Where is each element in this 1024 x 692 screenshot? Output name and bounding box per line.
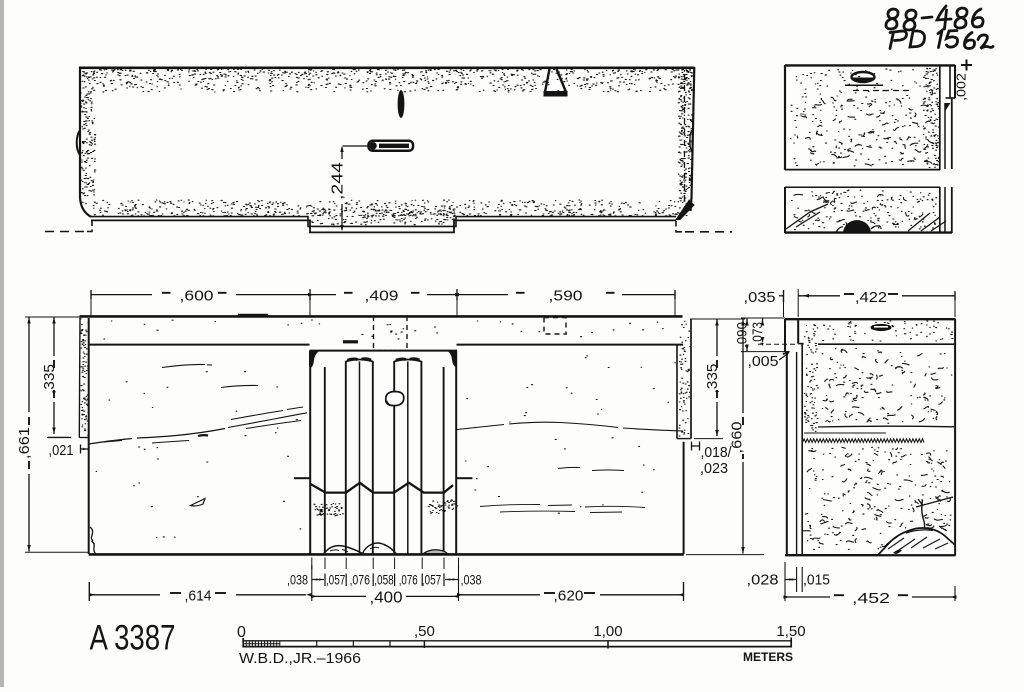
svg-text:,335: ,335 xyxy=(41,364,58,394)
svg-text:,50: ,50 xyxy=(414,623,435,640)
svg-text:,590: ,590 xyxy=(549,287,583,304)
svg-text:,452: ,452 xyxy=(852,590,890,607)
svg-text:,038: ,038 xyxy=(287,572,308,587)
svg-text:1,50: 1,50 xyxy=(776,623,805,640)
svg-text:,600: ,600 xyxy=(180,287,214,304)
svg-text:,057: ,057 xyxy=(326,572,346,587)
svg-text:,057: ,057 xyxy=(422,572,442,587)
svg-text:,028: ,028 xyxy=(747,573,779,589)
svg-text:,661: ,661 xyxy=(16,427,33,459)
svg-text:,400: ,400 xyxy=(370,589,403,606)
svg-text:,015: ,015 xyxy=(803,573,830,589)
svg-text:,076: ,076 xyxy=(399,572,418,587)
svg-text:,073: ,073 xyxy=(749,322,765,345)
svg-text:,005: ,005 xyxy=(748,354,779,370)
svg-text:,090: ,090 xyxy=(734,322,750,348)
svg-text:,021: ,021 xyxy=(49,443,74,459)
svg-text:,076: ,076 xyxy=(349,572,370,587)
svg-text:,058: ,058 xyxy=(374,572,394,587)
svg-text:,335: ,335 xyxy=(704,364,721,394)
svg-text:,614: ,614 xyxy=(185,588,212,605)
svg-text:,002: ,002 xyxy=(954,73,969,101)
svg-text:,660: ,660 xyxy=(729,422,746,454)
svg-text:A 3387: A 3387 xyxy=(90,619,176,658)
svg-text:,035: ,035 xyxy=(744,289,776,306)
svg-text:,620: ,620 xyxy=(554,588,584,605)
svg-text:,422: ,422 xyxy=(855,289,887,306)
svg-text:1,00: 1,00 xyxy=(593,623,622,640)
svg-text:METERS: METERS xyxy=(743,652,793,664)
svg-text:0: 0 xyxy=(237,624,246,641)
svg-text:,023: ,023 xyxy=(700,461,728,477)
svg-text:,038: ,038 xyxy=(461,572,482,587)
svg-text:,244: ,244 xyxy=(330,162,347,200)
svg-text:W.B.D.,JR.–1966: W.B.D.,JR.–1966 xyxy=(239,650,361,667)
svg-text:,409: ,409 xyxy=(365,287,399,304)
